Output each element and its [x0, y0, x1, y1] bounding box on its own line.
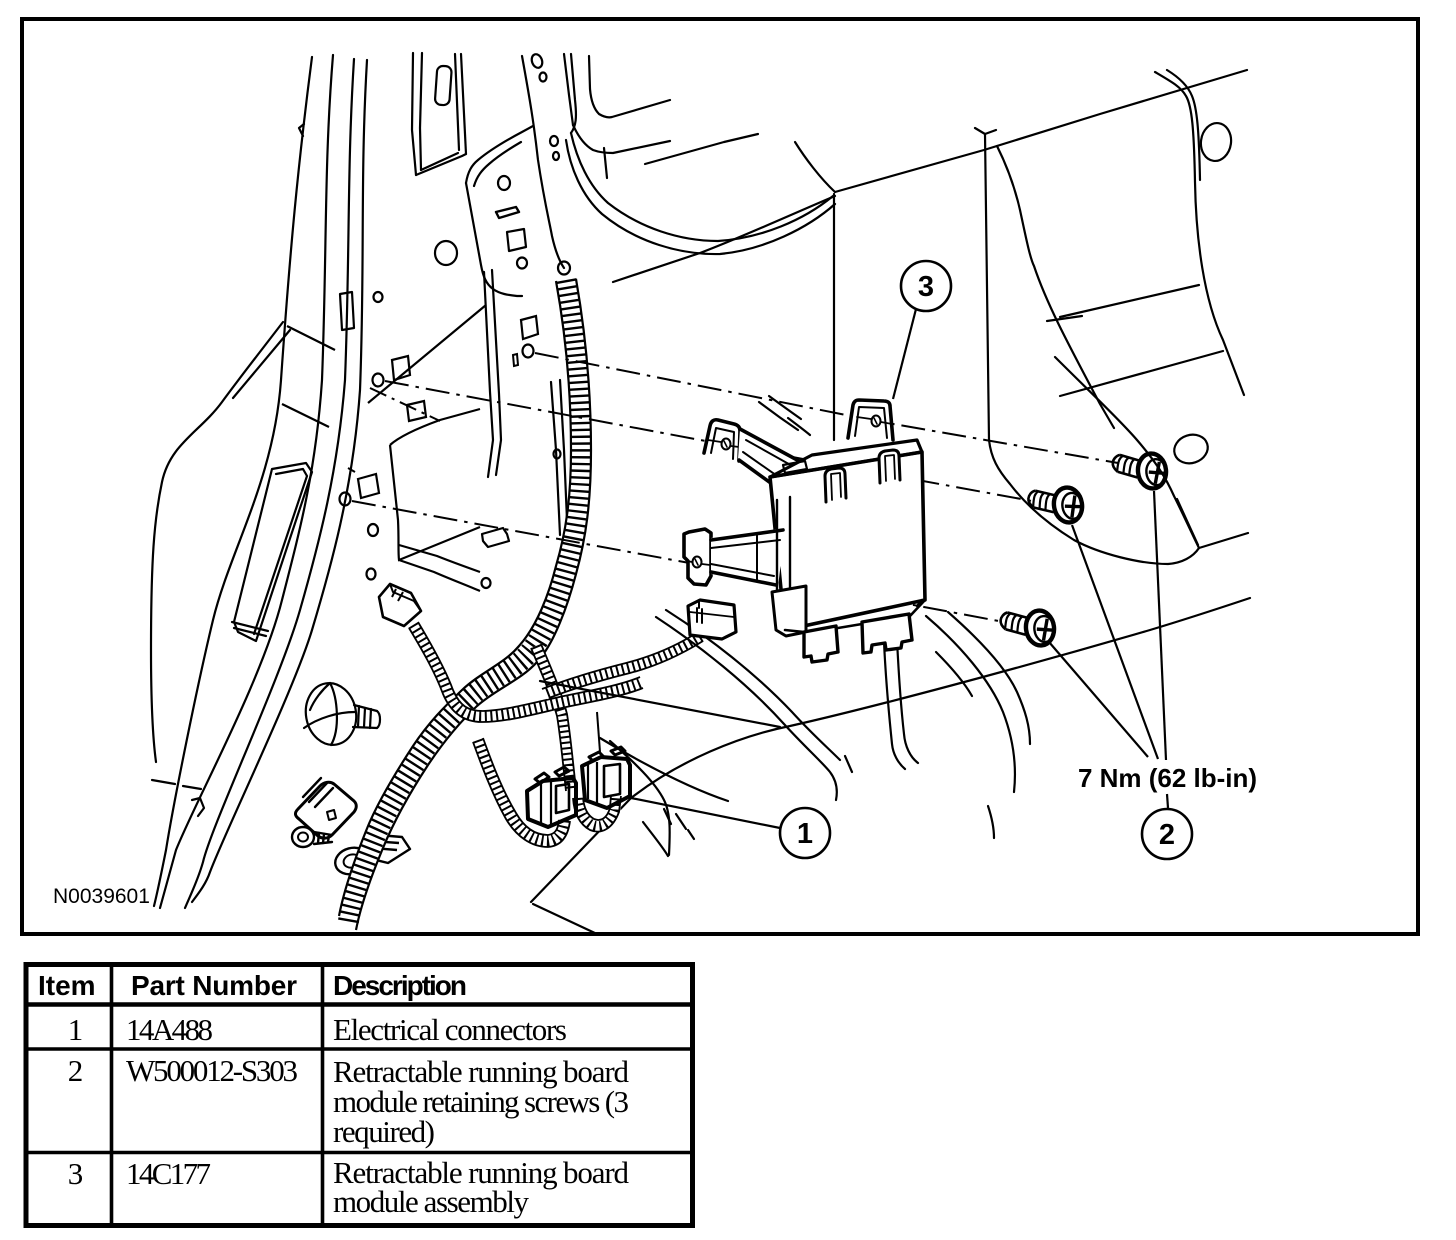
svg-text:required): required) — [333, 1114, 435, 1149]
svg-text:1: 1 — [797, 818, 813, 850]
svg-text:2: 2 — [1159, 819, 1175, 851]
svg-text:14A488: 14A488 — [126, 1012, 213, 1047]
svg-text:3: 3 — [918, 271, 934, 303]
svg-text:2: 2 — [68, 1053, 84, 1088]
svg-text:Electrical connectors: Electrical connectors — [333, 1012, 567, 1047]
svg-text:14C177: 14C177 — [126, 1156, 211, 1191]
svg-text:W500012-S303: W500012-S303 — [126, 1053, 298, 1088]
svg-text:module assembly: module assembly — [333, 1184, 530, 1219]
svg-text:1: 1 — [68, 1012, 84, 1047]
svg-text:3: 3 — [68, 1156, 84, 1191]
svg-text:Description: Description — [333, 970, 467, 1001]
svg-text:Item: Item — [38, 970, 96, 1001]
svg-text:Part Number: Part Number — [131, 970, 297, 1001]
svg-text:N0039601: N0039601 — [53, 885, 150, 908]
svg-text:7 Nm (62 lb-in): 7 Nm (62 lb-in) — [1078, 763, 1257, 793]
